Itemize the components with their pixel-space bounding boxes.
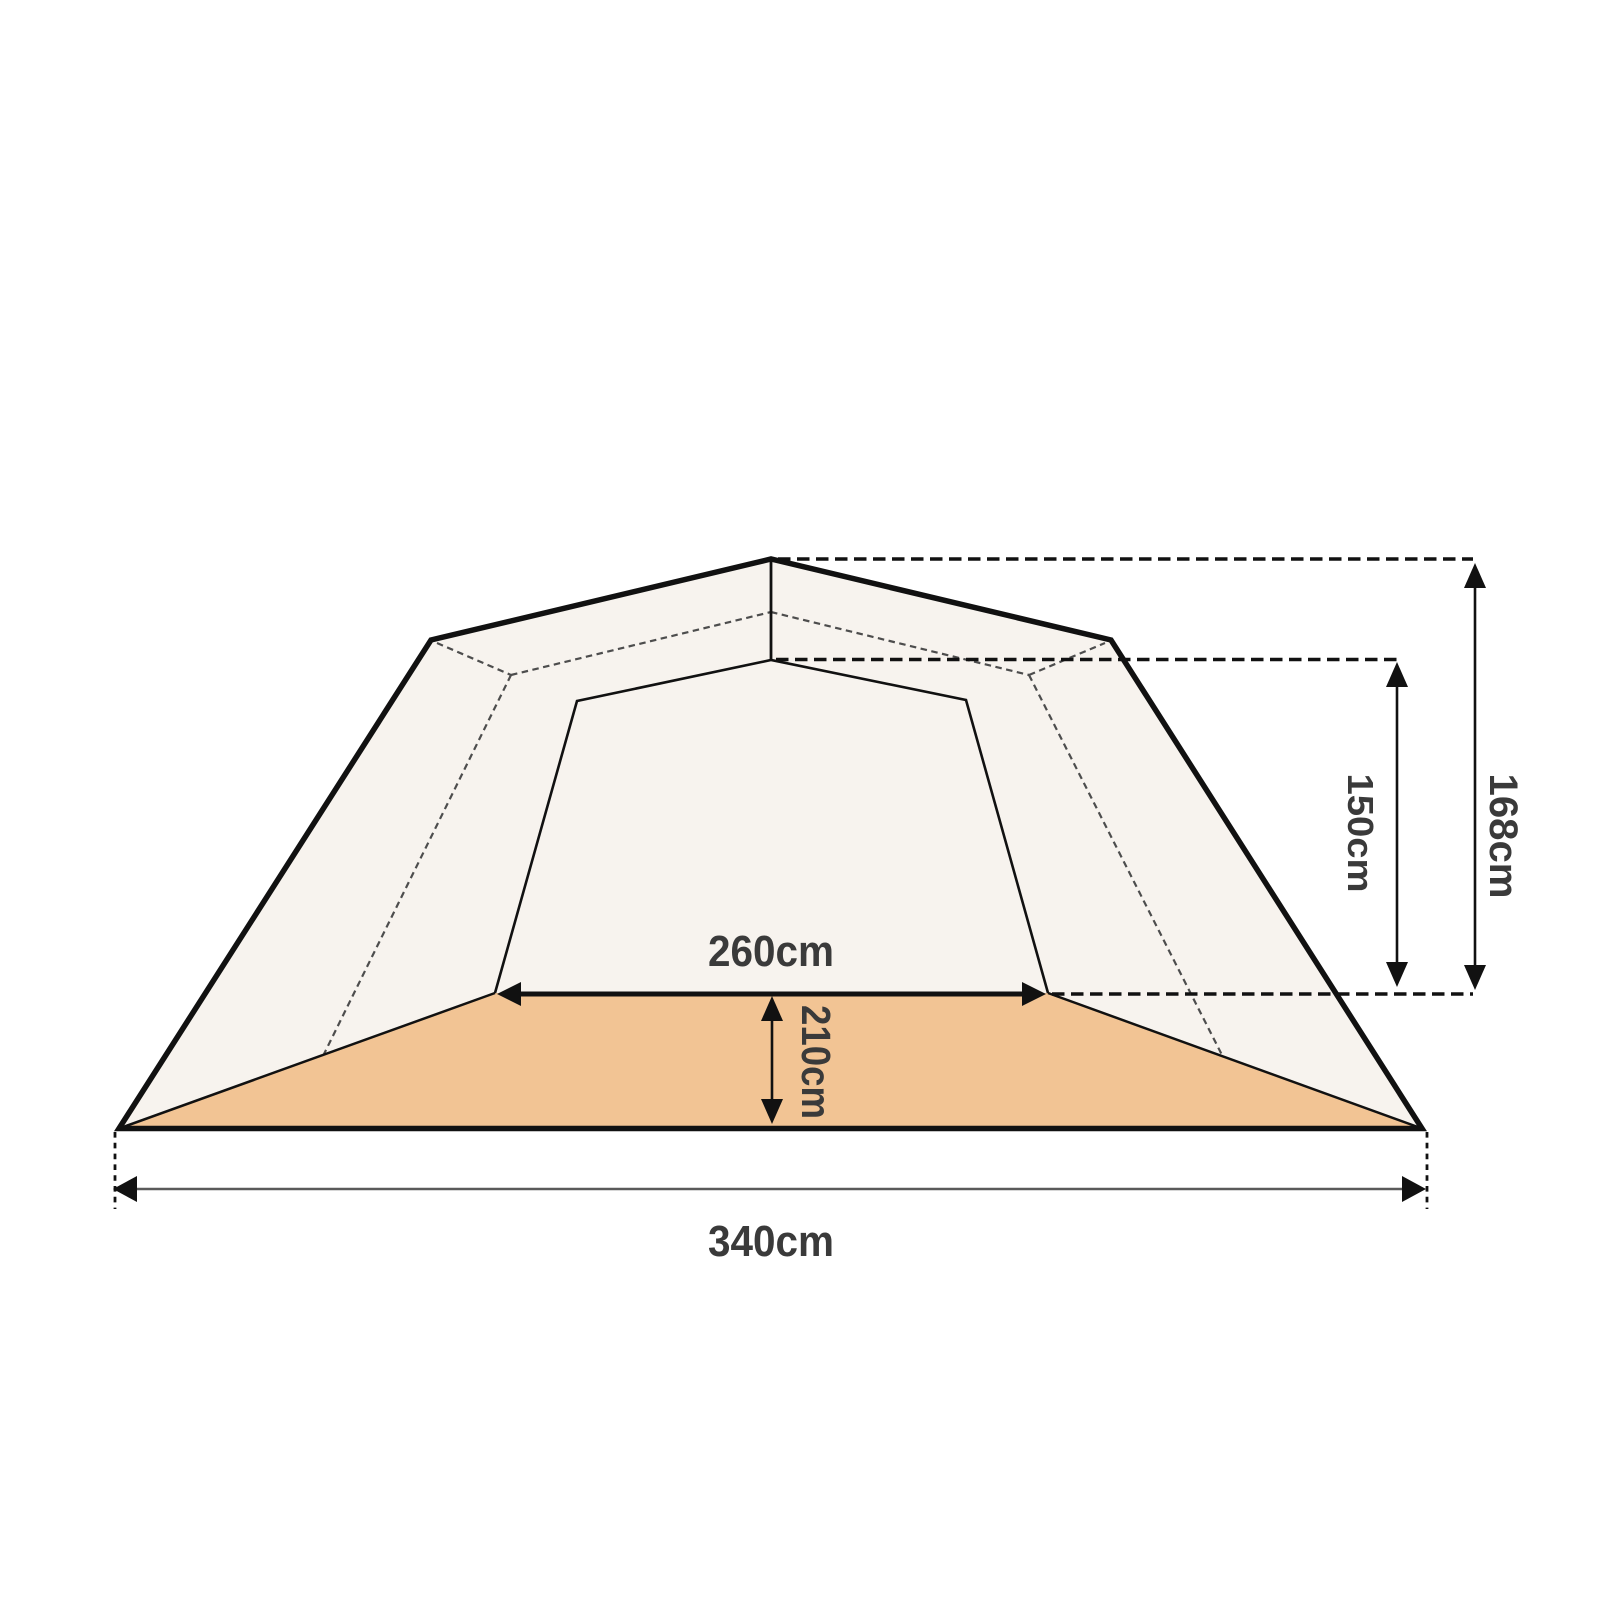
svg-text:150cm: 150cm bbox=[1340, 774, 1381, 893]
svg-text:260cm: 260cm bbox=[708, 927, 834, 976]
svg-text:210cm: 210cm bbox=[793, 1005, 839, 1119]
svg-text:168cm: 168cm bbox=[1481, 774, 1525, 899]
svg-text:340cm: 340cm bbox=[708, 1217, 834, 1266]
